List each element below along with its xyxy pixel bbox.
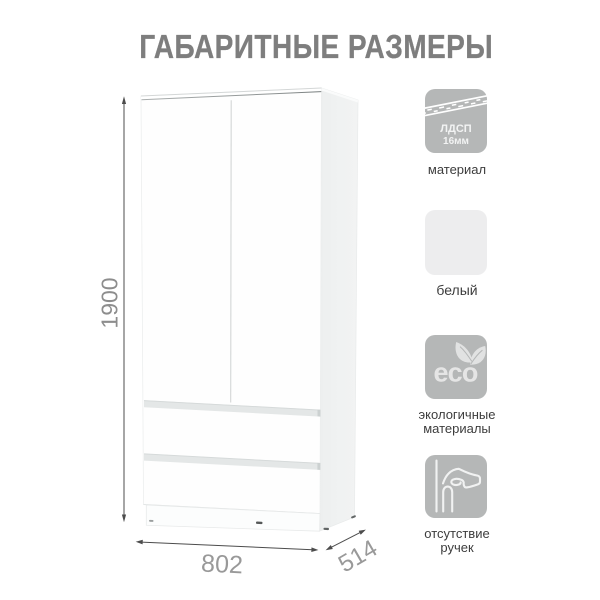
svg-text:1900: 1900 — [97, 277, 123, 328]
svg-text:802: 802 — [201, 550, 244, 580]
svg-text:eco: eco — [433, 357, 477, 387]
